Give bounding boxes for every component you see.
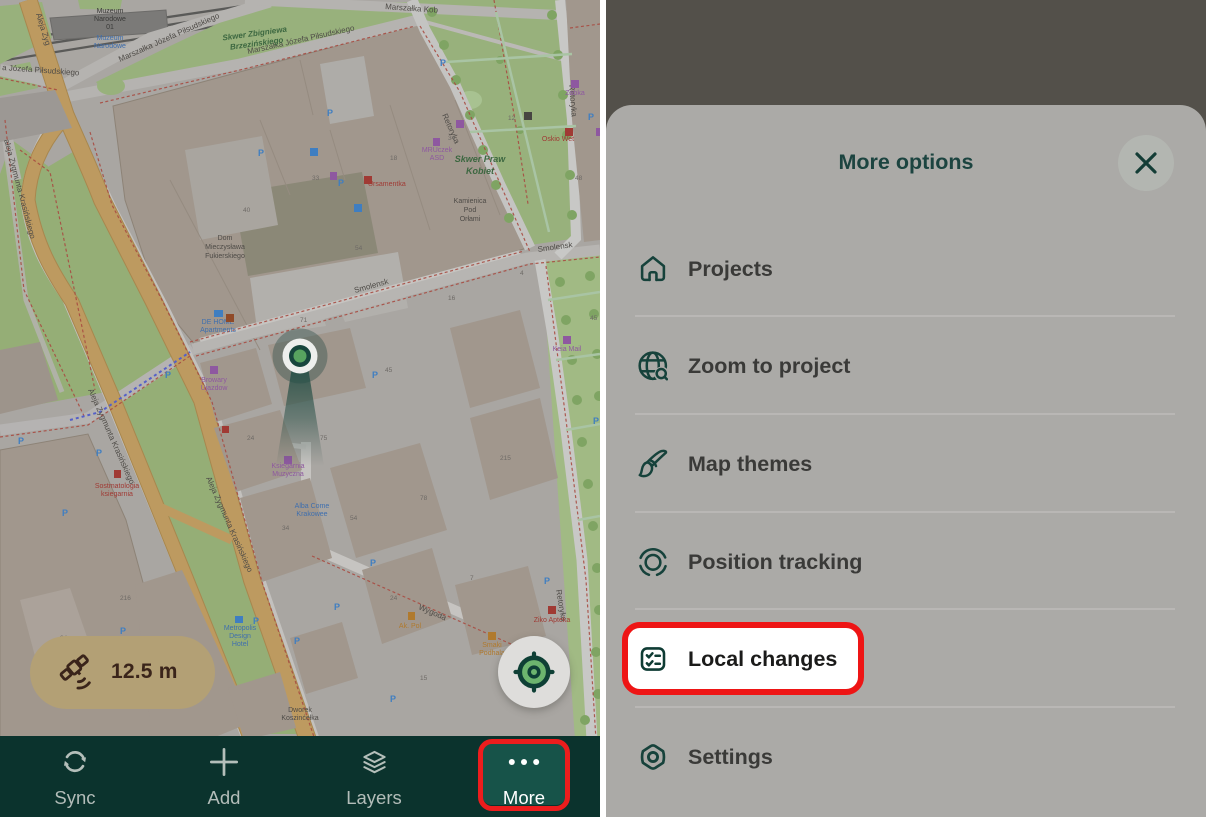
- svg-text:33: 33: [312, 175, 320, 182]
- svg-text:P: P: [544, 576, 550, 586]
- svg-text:ASD: ASD: [430, 155, 444, 162]
- svg-text:ksiegarnia: ksiegarnia: [101, 491, 133, 498]
- svg-text:216: 216: [120, 595, 131, 602]
- svg-text:Muzeum: Muzeum: [97, 8, 124, 15]
- svg-text:Design: Design: [229, 633, 251, 640]
- svg-text:Ursamentka: Ursamentka: [368, 181, 406, 188]
- svg-text:54: 54: [355, 245, 363, 252]
- svg-text:P: P: [440, 58, 446, 68]
- svg-text:Ziko Apteka: Ziko Apteka: [534, 617, 571, 624]
- svg-text:Narodowe: Narodowe: [94, 43, 126, 50]
- svg-text:P: P: [253, 616, 259, 626]
- svg-text:Muzeum: Muzeum: [97, 35, 124, 42]
- svg-text:Kamienica: Kamienica: [454, 198, 487, 205]
- svg-text:16: 16: [448, 295, 456, 302]
- svg-text:45: 45: [590, 315, 598, 322]
- svg-text:P: P: [62, 508, 68, 518]
- svg-text:Sostmatologia: Sostmatologia: [95, 483, 139, 490]
- svg-text:15: 15: [420, 675, 428, 682]
- svg-text:P: P: [588, 112, 594, 122]
- svg-text:71: 71: [300, 317, 308, 324]
- svg-text:48: 48: [575, 175, 583, 182]
- svg-text:Kobiet: Kobiet: [466, 166, 495, 176]
- svg-text:Mieczysława: Mieczysława: [205, 244, 245, 251]
- svg-text:Oskio Wet: Oskio Wet: [542, 136, 574, 143]
- svg-text:Ak. Pol: Ak. Pol: [399, 623, 422, 630]
- svg-text:P: P: [18, 436, 24, 446]
- svg-text:P: P: [370, 558, 376, 568]
- svg-text:P: P: [327, 108, 333, 118]
- svg-text:12: 12: [508, 115, 516, 122]
- svg-text:Skwer Praw: Skwer Praw: [455, 154, 507, 164]
- svg-text:215: 215: [500, 455, 511, 462]
- svg-text:54: 54: [350, 515, 358, 522]
- svg-text:34: 34: [448, 135, 456, 142]
- svg-text:Pod: Pod: [464, 207, 477, 214]
- svg-text:Hotel: Hotel: [232, 641, 249, 648]
- svg-text:P: P: [165, 370, 171, 380]
- svg-text:P: P: [593, 416, 599, 426]
- svg-text:78: 78: [420, 495, 428, 502]
- svg-text:Browary: Browary: [201, 377, 227, 384]
- svg-text:4: 4: [520, 270, 524, 277]
- svg-text:P: P: [96, 448, 102, 458]
- svg-text:P: P: [372, 370, 378, 380]
- svg-text:Apartments: Apartments: [200, 327, 236, 334]
- svg-text:Fukierskiego: Fukierskiego: [205, 253, 245, 260]
- svg-text:75: 75: [320, 435, 328, 442]
- svg-text:7: 7: [470, 575, 474, 582]
- svg-text:24: 24: [247, 435, 255, 442]
- svg-text:Muzyczna: Muzyczna: [272, 471, 304, 478]
- svg-text:45: 45: [385, 367, 393, 374]
- svg-text:01: 01: [106, 24, 114, 31]
- svg-text:Narodowe: Narodowe: [94, 16, 126, 23]
- svg-text:Dworek: Dworek: [288, 707, 312, 714]
- svg-text:P: P: [338, 178, 344, 188]
- svg-text:Ujazdow: Ujazdow: [201, 385, 229, 392]
- svg-text:18: 18: [390, 155, 398, 162]
- svg-text:P: P: [334, 602, 340, 612]
- svg-text:P: P: [120, 626, 126, 636]
- svg-text:Alba Come: Alba Come: [295, 503, 330, 510]
- svg-text:P: P: [258, 148, 264, 158]
- svg-text:Metropolis: Metropolis: [224, 625, 257, 632]
- svg-text:Koszinćełka: Koszinćełka: [281, 715, 318, 722]
- svg-text:MRUczek: MRUczek: [422, 147, 453, 154]
- svg-text:40: 40: [243, 207, 251, 214]
- svg-text:Dom: Dom: [218, 235, 233, 242]
- svg-text:34: 34: [282, 525, 290, 532]
- svg-text:Zabka: Zabka: [565, 90, 585, 97]
- svg-text:24: 24: [390, 595, 398, 602]
- svg-text:Orłami: Orłami: [460, 216, 481, 223]
- svg-text:Krakowee: Krakowee: [296, 511, 327, 518]
- svg-text:P: P: [390, 694, 396, 704]
- svg-text:Smaki: Smaki: [482, 642, 502, 649]
- svg-text:Keia Mail: Keia Mail: [553, 346, 582, 353]
- svg-text:P: P: [294, 636, 300, 646]
